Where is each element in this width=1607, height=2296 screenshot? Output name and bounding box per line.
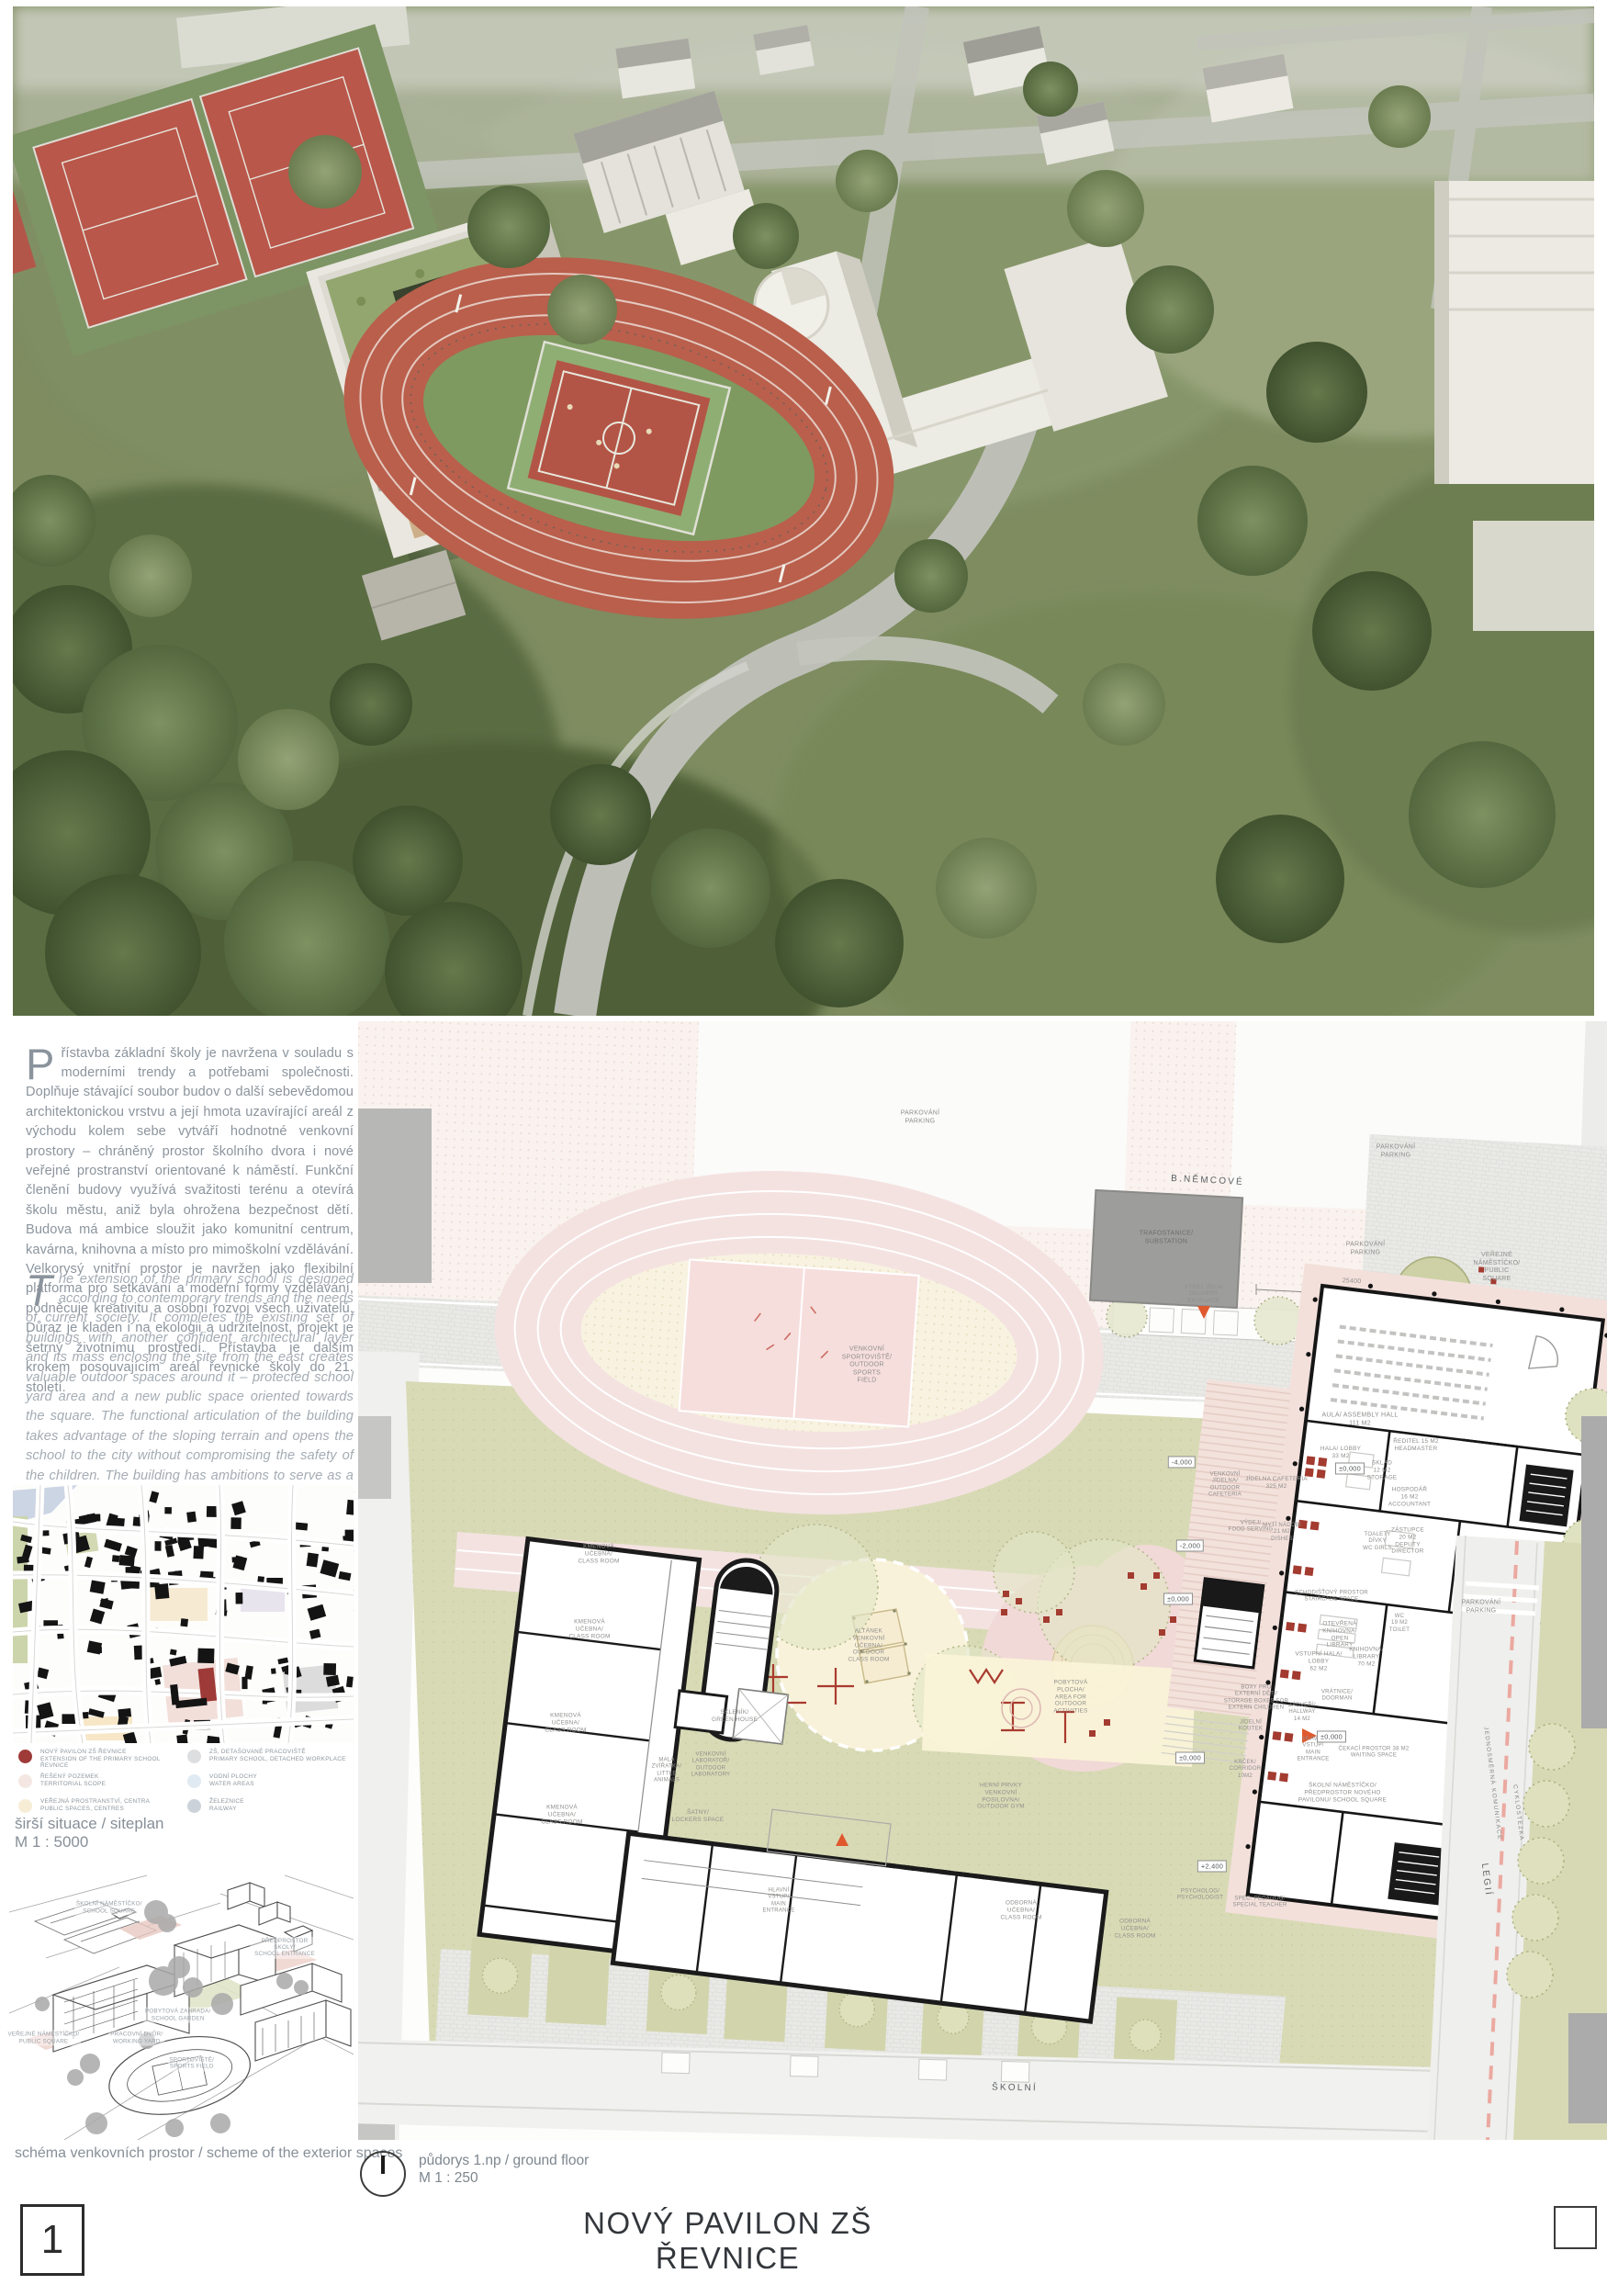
north-arrow-icon <box>360 2151 406 2197</box>
plan-room-label: HALA/ LOBBY 33 M2 <box>1320 1446 1361 1460</box>
plan-room-label: MYTÍ NÁDOBÍ 21 M2 DISHES <box>1263 1523 1301 1543</box>
plan-room-label: PSYCHOLOG/ PSYCHOLOGIST <box>1177 1889 1223 1903</box>
legend-swatch <box>18 1750 32 1763</box>
plan-room-label: MALÁ ZVÍŘATKA/ LITTLE ANIMALS <box>652 1757 682 1784</box>
aerial-rendering <box>13 6 1594 1016</box>
plan-room-label: VENKOVNÍ SPORTOVIŠTĚ/ OUTDOOR SPORTS FIE… <box>842 1346 892 1386</box>
legend-swatch <box>18 1799 32 1813</box>
plan-room-label: KMENOVÁ UČEBNA/ CLASS ROOM <box>541 1804 582 1825</box>
legend-swatch <box>187 1799 201 1813</box>
plan-room-label: SKLENÍK/ GREEN HOUSE <box>712 1709 758 1724</box>
legend-label: VEŘEJNÁ PROSTRANSTVÍ, CENTRA PUBLIC SPAC… <box>40 1798 150 1812</box>
legend-label: NOVÝ PAVILON ZŠ ŘEVNICE EXTENSION OF THE… <box>40 1749 182 1770</box>
plan-room-label: KNIHOVNA/ LIBRARY 70 M2 <box>1349 1646 1383 1667</box>
level-marker: ±0,000 <box>1175 1751 1205 1763</box>
plan-room-label: ŠATNY/ LOCKERS SPACE <box>672 1809 725 1824</box>
dropcap-en: T <box>26 1270 59 1307</box>
aerial-rendering-graphic <box>13 6 1594 1016</box>
street-label: ŠKOLNÍ <box>992 2082 1038 2094</box>
plan-room-label: ZÁSTUPCE 20 M2 DEPUTY DIRECTOR <box>1391 1526 1424 1555</box>
level-marker: -2,000 <box>1176 1539 1204 1551</box>
plan-room-label: TRAFOSTANICE/ SUBSTATION <box>1140 1230 1194 1245</box>
exterior-spaces-scheme: ŠKOLNÍ NÁMĚSTÍČKO/ SCHOOL SQUAREPŘEDPROS… <box>9 1857 354 2140</box>
corner-box <box>1554 2206 1597 2249</box>
siteplan-map <box>13 1485 354 1743</box>
scheme-caption: schéma venkovních prostor / scheme of th… <box>15 2145 402 2162</box>
plan-room-label: JÍDELNA CAFETERIA 325 M2 <box>1245 1476 1308 1491</box>
plan-room-label: HLAVNÍ VSTUP/ MAIN ENTRANCE <box>762 1887 794 1914</box>
ground-floor-plan-graphic <box>358 1021 1607 2140</box>
level-marker: ±0,000 <box>1163 1593 1193 1604</box>
siteplan-caption: širší situace / siteplan M 1 : 5000 <box>15 1815 164 1851</box>
scheme-label: ŠKOLNÍ NÁMĚSTÍČKO/ SCHOOL SQUARE <box>74 1900 144 1916</box>
plan-room-label: POBYTOVÁ PLOCHA/ AREA FOR OUTDOOR ACTIVI… <box>1053 1679 1087 1715</box>
plan-room-label: KRČEK/ CORRIDOR 10M2 <box>1230 1760 1262 1780</box>
plan-room-label: ODBORNÁ UČEBNA/ CLASS ROOM <box>1000 1899 1041 1920</box>
scheme-label: SPORTOVIŠTĚ/ SPORTS FIELD <box>167 2055 216 2071</box>
legend-swatch <box>18 1774 32 1788</box>
plan-room-label: WC 19 M2 TOILET <box>1389 1614 1410 1634</box>
plan-caption: půdorys 1.np / ground floor M 1 : 250 <box>419 2152 589 2187</box>
scheme-label: VEŘEJNÉ NÁMĚSTÍČKO/ PUBLIC SQUARE <box>6 2031 82 2046</box>
plan-room-label: SKLAD 12 M2 STORAGE <box>1367 1459 1398 1480</box>
legend-item: ZŠ, DETAŠOVANÉ PRACOVIŠTĚ PRIMARY SCHOOL… <box>187 1749 351 1771</box>
scheme-label: POBYTOVÁ ZAHRADA/ SCHOOL GARDEN <box>143 2008 213 2023</box>
plan-room-label: ČEKACÍ PROSTOR 38 M2 WAITING SPACE <box>1339 1747 1410 1761</box>
legend-label: ŽELEZNICE RAILWAY <box>209 1798 244 1812</box>
plan-room-label: ZÁDVEŘÍ/ HALLWAY 14 M2 <box>1288 1703 1316 1723</box>
plan-room-label: JÍDELNÍ KOUTEK <box>1239 1720 1263 1734</box>
plan-room-label: OTEVŘENÁ KNIHOVNA/ OPEN LIBRARY <box>1322 1620 1356 1649</box>
plan-room-label: PARKOVÁNÍ PARKING <box>1346 1241 1386 1256</box>
plan-room-label: PARKOVÁNÍ PARKING <box>901 1109 940 1125</box>
legend-swatch <box>187 1750 201 1763</box>
legend-swatch <box>187 1774 201 1788</box>
legend-label: VODNÍ PLOCHY WATER AREAS <box>209 1773 257 1787</box>
legend-item: ŽELEZNICE RAILWAY <box>187 1798 351 1820</box>
scheme-label: PŘEDPROSTOR ŠKOLY/ SCHOOL ENTRANCE <box>251 1936 320 1958</box>
plan-room-label: HERNÍ PRVKY VENKOVNÍ POSILOVNA/ OUTDOOR … <box>977 1782 1025 1810</box>
plan-room-label: VRÁTNICE/ DOORMAN <box>1321 1690 1353 1704</box>
level-marker: -4,000 <box>1168 1456 1196 1468</box>
plan-room-label: ALTÁNEK VENKOVNÍ UČEBNA/ OUTDOOR CLASS R… <box>848 1627 889 1663</box>
level-marker: ±0,000 <box>1335 1462 1365 1474</box>
plan-room-label: VENKOVNÍ JÍDELNA/ OUTDOOR CAFETERIA <box>1208 1471 1242 1498</box>
plan-room-label: KMENOVÁ UČEBNA/ CLASS ROOM <box>568 1618 610 1639</box>
plan-room-label: SCHODIŠŤOVÝ PROSTOR STAIRCASE SPACE <box>1295 1591 1368 1604</box>
plan-room-label: ŘEDITEL 15 M2 HEADMASTER <box>1393 1438 1439 1453</box>
siteplan-legend: NOVÝ PAVILON ZŠ ŘEVNICE EXTENSION OF THE… <box>18 1749 351 1820</box>
dropcap-cz: P <box>26 1044 61 1081</box>
plan-room-label: SPEC. PEDAGOG/ SPECIAL TEACHER <box>1232 1896 1287 1910</box>
page-number-box: 1 <box>20 2204 84 2276</box>
level-marker: ±0,000 <box>1317 1730 1346 1742</box>
level-marker: +2,400 <box>1197 1860 1227 1872</box>
plan-room-label: VEŘEJNÉ NÁMĚSTÍČKO/ PUBLIC SQUARE <box>1474 1252 1521 1283</box>
legend-item: VODNÍ PLOCHY WATER AREAS <box>187 1773 351 1795</box>
plan-room-label: VENKOVNÍ LABORATOŘ/ OUTDOOR LABORATORY <box>691 1751 731 1778</box>
plan-room-label: PARKOVÁNÍ PARKING <box>1377 1143 1416 1159</box>
plan-room-label: PARKOVÁNÍ PARKING <box>1462 1599 1501 1615</box>
ground-floor-plan: B.NĚMCOVÉŠKOLNÍLEGIÍJEDNOSMĚRNÁ KOMUNIKA… <box>358 1021 1607 2140</box>
scheme-label: PRACOVNÍ DVŮR/ WORKING YARD <box>108 2031 164 2046</box>
legend-label: ZŠ, DETAŠOVANÉ PRACOVIŠTĚ PRIMARY SCHOOL… <box>209 1749 346 1762</box>
presentation-board: Přístavba základní školy je navržena v s… <box>0 0 1607 2296</box>
plan-room-label: VÝDEJ JÍDLA/ DELIVERY ENTRANCE <box>1185 1285 1223 1305</box>
plan-room-label: KMENOVÁ UČEBNA/ CLASS ROOM <box>578 1543 619 1564</box>
legend-item: ŘEŠENÝ POZEMEK TERRITORIAL SCOPE <box>18 1773 182 1795</box>
plan-room-label: KMENOVÁ UČEBNA/ CLASS ROOM <box>545 1712 586 1733</box>
board-title: NOVÝ PAVILON ZŠ ŘEVNICE <box>514 2206 941 2276</box>
plan-room-label: BOXY PRO EXTERNÍ DĚTI/ STORAGE BOXES FOR… <box>1224 1684 1288 1711</box>
legend-item: NOVÝ PAVILON ZŠ ŘEVNICE EXTENSION OF THE… <box>18 1749 182 1771</box>
page-number: 1 <box>41 2217 63 2263</box>
plan-room-label: ŠKOLNÍ NÁMĚSTÍČKO/ PŘEDPROSTOR NOVÉHO PA… <box>1298 1782 1387 1803</box>
plan-room-label: VSTUPNÍ HALA/ LOBBY 62 M2 <box>1295 1650 1342 1671</box>
plan-room-label: TOALETY DÍVKY WC GIRLS <box>1363 1532 1392 1552</box>
plan-room-label: HOSPODÁŘ 16 M2 ACCOUNTANT <box>1388 1486 1431 1507</box>
legend-label: ŘEŠENÝ POZEMEK TERRITORIAL SCOPE <box>40 1773 106 1787</box>
plan-room-label: 25400 <box>1342 1277 1361 1287</box>
plan-room-label: AULA/ ASSEMBLY HALL 111 M2 <box>1321 1412 1398 1427</box>
plan-room-label: ODBORNÁ UČEBNA/ CLASS ROOM <box>1114 1918 1155 1939</box>
